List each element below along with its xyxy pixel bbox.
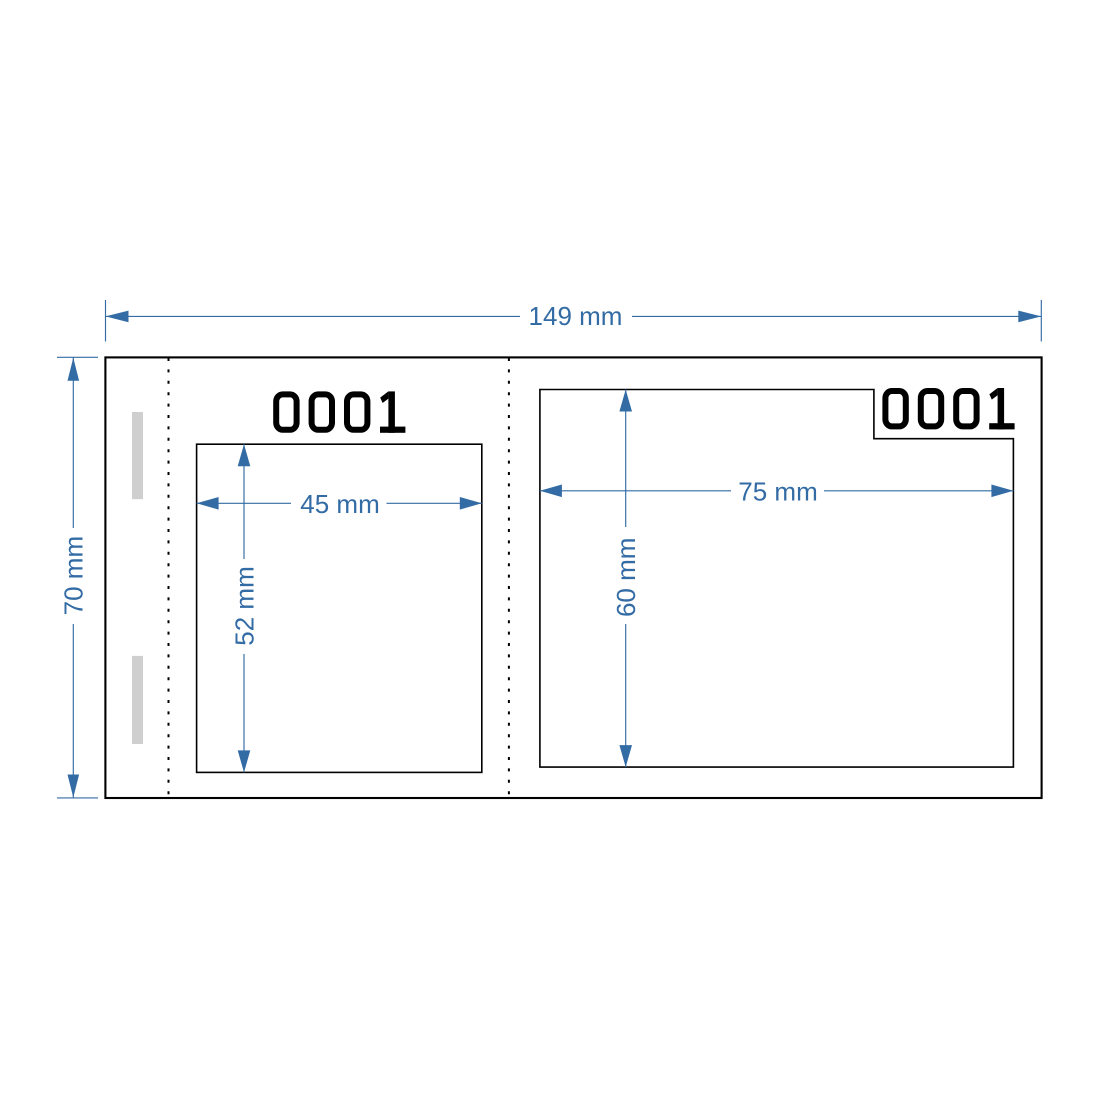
svg-text:52 mm: 52 mm bbox=[229, 566, 259, 645]
svg-text:149 mm: 149 mm bbox=[529, 301, 623, 331]
svg-text:45 mm: 45 mm bbox=[300, 489, 379, 519]
svg-text:70 mm: 70 mm bbox=[59, 536, 89, 615]
svg-text:75 mm: 75 mm bbox=[738, 476, 817, 506]
svg-text:60 mm: 60 mm bbox=[611, 538, 641, 617]
